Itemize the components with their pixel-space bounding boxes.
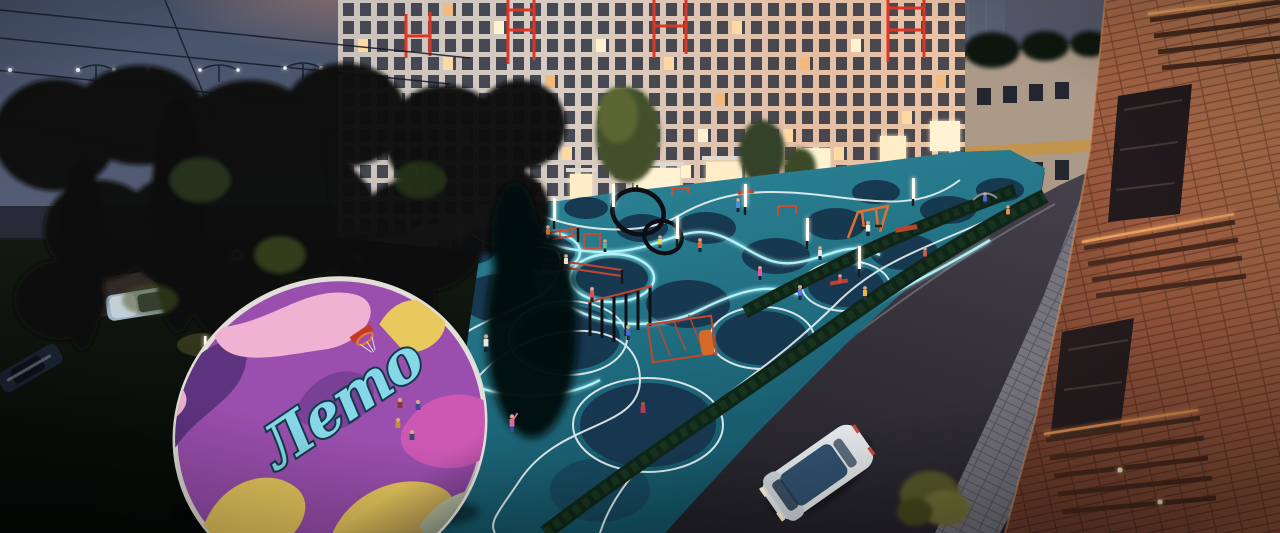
courtyard-render: Лето <box>0 0 1280 533</box>
vignette <box>0 0 1280 533</box>
